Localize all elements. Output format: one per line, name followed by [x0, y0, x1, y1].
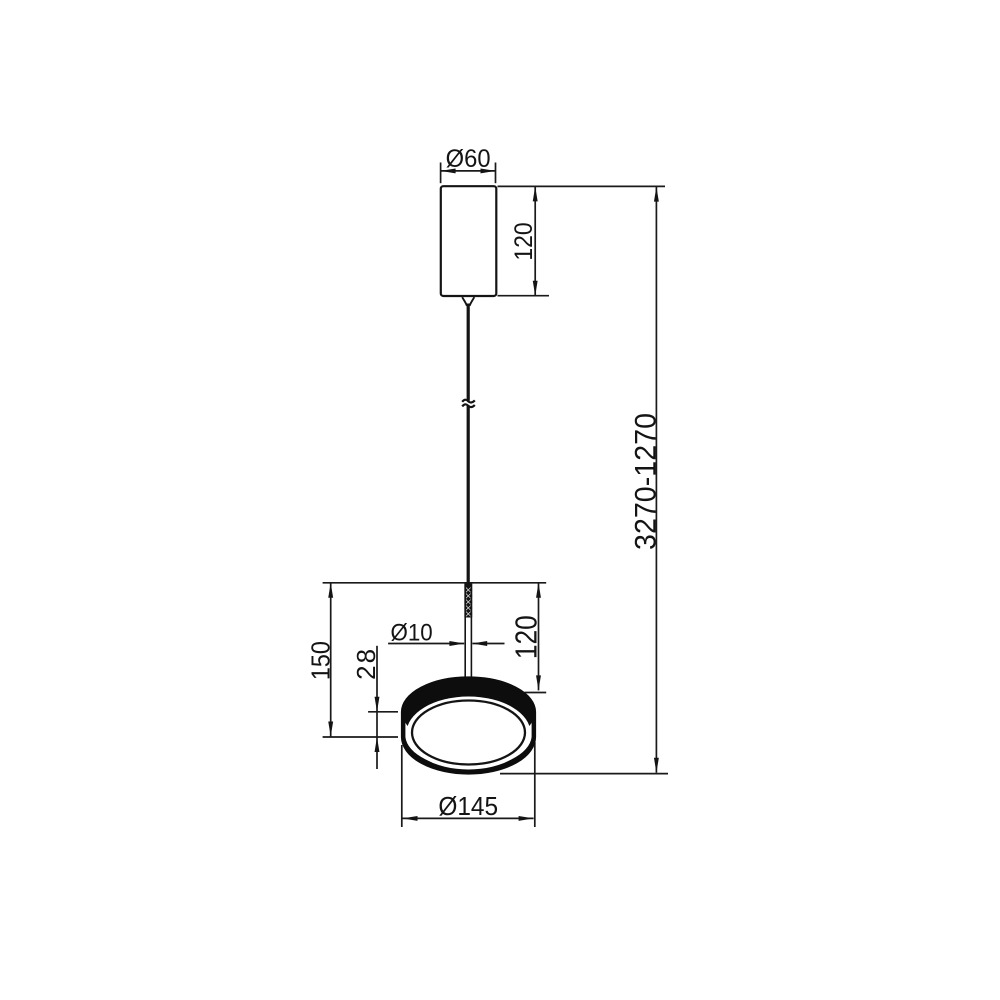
svg-text:28: 28	[351, 647, 381, 680]
svg-text:150: 150	[307, 641, 335, 680]
svg-text:Ø145: Ø145	[438, 792, 498, 821]
svg-text:120: 120	[510, 222, 538, 260]
svg-text:120: 120	[510, 615, 544, 659]
svg-text:Ø10: Ø10	[391, 619, 433, 646]
svg-text:Ø60: Ø60	[446, 145, 491, 173]
svg-text:3270-1270: 3270-1270	[629, 413, 663, 550]
